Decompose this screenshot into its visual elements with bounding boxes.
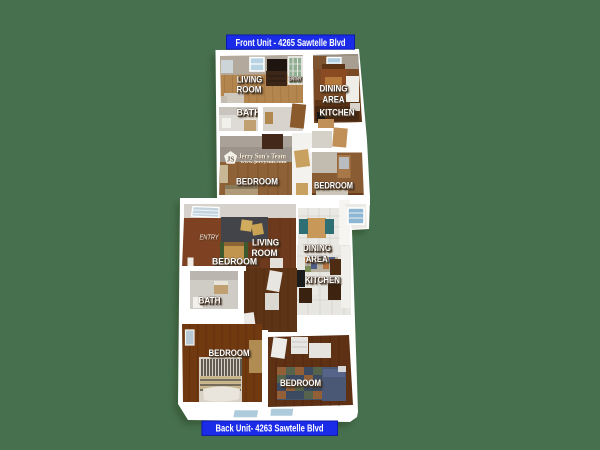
svg-text:BEDROOM: BEDROOM [212, 257, 257, 268]
svg-text:BEDROOM: BEDROOM [280, 378, 321, 389]
svg-text:KITCHEN: KITCHEN [320, 108, 355, 119]
svg-text:BEDROOM: BEDROOM [236, 177, 278, 188]
svg-text:BATH: BATH [199, 296, 221, 307]
svg-text:ROOM: ROOM [237, 85, 262, 96]
svg-text:Front Unit - 4265 Sawtelle Blv: Front Unit - 4265 Sawtelle Blvd [236, 38, 346, 49]
svg-text:KITCHEN: KITCHEN [305, 275, 340, 286]
svg-text:Back Unit- 4263 Sawtelle Blvd: Back Unit- 4263 Sawtelle Blvd [216, 423, 324, 434]
svg-text:www.jerrysun.com: www.jerrysun.com [241, 159, 288, 164]
svg-text:DINING: DINING [303, 243, 331, 254]
svg-text:BATH: BATH [237, 108, 261, 119]
svg-text:DINING: DINING [320, 84, 348, 95]
svg-text:ENTRY: ENTRY [200, 235, 220, 242]
svg-text:AREA: AREA [323, 95, 345, 106]
svg-text:BEDROOM: BEDROOM [314, 181, 353, 192]
svg-text:AREA: AREA [306, 254, 328, 265]
svg-text:ENTRY: ENTRY [289, 77, 303, 83]
svg-text:BEDROOM: BEDROOM [209, 348, 250, 359]
svg-text:JS: JS [227, 156, 235, 164]
svg-text:LIVING: LIVING [252, 238, 279, 249]
